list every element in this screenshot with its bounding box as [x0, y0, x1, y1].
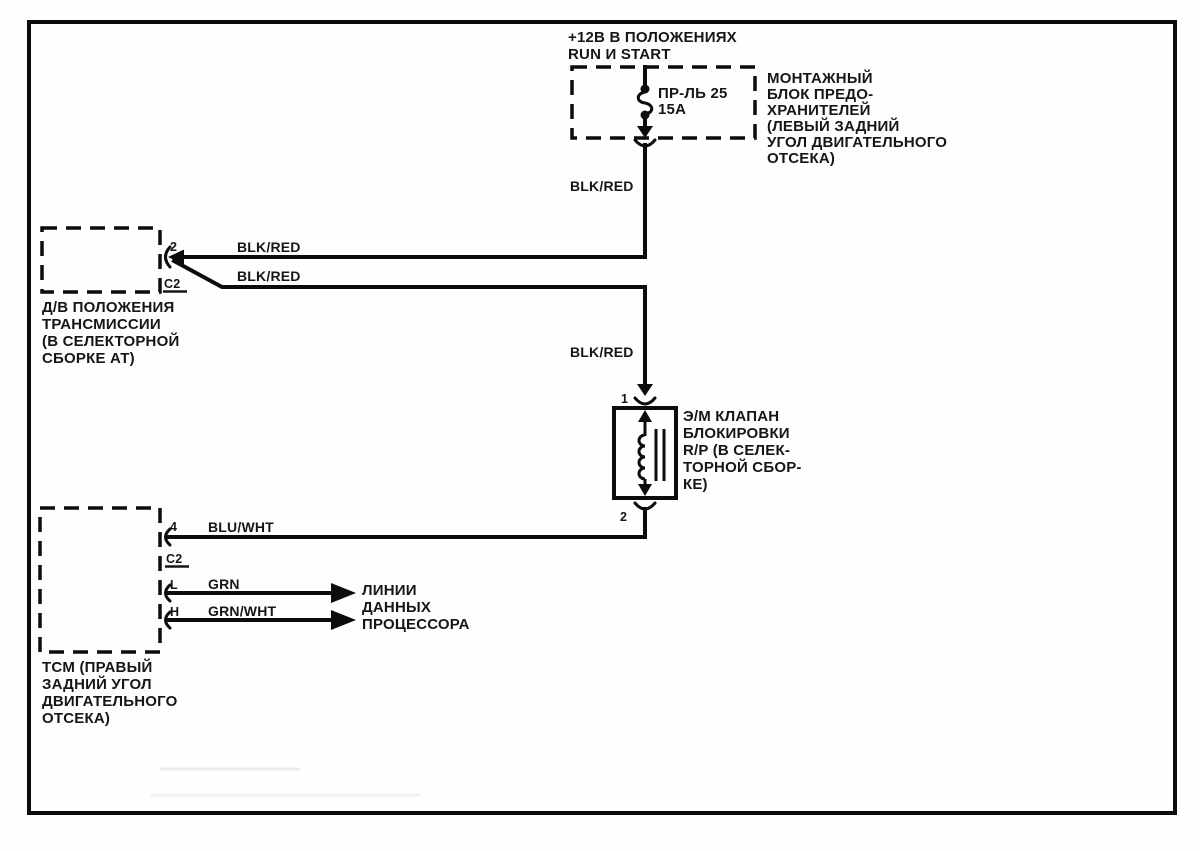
wire-label-solenoid-return: BLU/WHT — [208, 519, 274, 535]
data-line-h-arrow — [331, 610, 356, 630]
wire-label-grn-wht: GRN/WHT — [208, 603, 277, 619]
solenoid-pin1-arrow — [637, 384, 653, 396]
wiring-diagram-page: +12В В ПОЛОЖЕНИЯХ RUN И START ПР-ЛЬ 25 1… — [0, 0, 1200, 851]
power-source-label-line1: +12В В ПОЛОЖЕНИЯХ — [568, 29, 737, 46]
page-border — [29, 22, 1175, 813]
trans-switch-box — [42, 228, 160, 292]
tcm-description: TCM (ПРАВЫЙ ЗАДНИЙ УГОЛ ДВИГАТЕЛЬНОГО ОТ… — [42, 658, 178, 727]
fuse-block-desc-line6: ОТСЕКА) — [767, 150, 835, 167]
wiring-diagram-canvas: +12В В ПОЛОЖЕНИЯХ RUN И START ПР-ЛЬ 25 1… — [0, 0, 1200, 851]
solenoid-description: Э/М КЛАПАН БЛОКИРОВКИ R/P (В СЕЛЕК- ТОРН… — [683, 408, 802, 493]
trans-switch-pin2-label: 2 — [170, 240, 177, 254]
solenoid-desc-line3: R/P (В СЕЛЕК- — [683, 442, 790, 459]
wire-label-switch-output: BLK/RED — [237, 268, 301, 284]
solenoid-desc-line1: Э/М КЛАПАН — [683, 408, 779, 425]
fuse-output-arrow — [637, 126, 653, 138]
data-lines-description: ЛИНИИ ДАННЫХ ПРОЦЕССОРА — [362, 582, 470, 633]
trans-switch-desc-line4: СБОРКЕ АТ) — [42, 350, 135, 367]
solenoid-pin1-label: 1 — [621, 392, 628, 406]
tcm-desc-line3: ДВИГАТЕЛЬНОГО — [42, 693, 178, 710]
fuse-symbol — [635, 67, 655, 146]
solenoid-desc-line4: ТОРНОЙ СБОР- — [683, 458, 802, 476]
tcm-desc-line4: ОТСЕКА) — [42, 710, 110, 727]
fuse-block-description: МОНТАЖНЫЙ БЛОК ПРЕДО- ХРАНИТЕЛЕЙ (ЛЕВЫЙ … — [767, 69, 947, 167]
fuse-block-desc-line2: БЛОК ПРЕДО- — [767, 86, 873, 103]
trans-switch-desc-line1: Д/В ПОЛОЖЕНИЯ — [42, 299, 174, 316]
fuse-block-desc-line5: УГОЛ ДВИГАТЕЛЬНОГО — [767, 134, 947, 151]
data-lines-desc-line1: ЛИНИИ — [362, 582, 417, 599]
wire-label-fuse-output: BLK/RED — [570, 178, 634, 194]
data-lines-desc-line3: ПРОЦЕССОРА — [362, 616, 470, 633]
solenoid-desc-line5: КЕ) — [683, 476, 708, 493]
fuse-block-desc-line1: МОНТАЖНЫЙ — [767, 69, 873, 87]
trans-switch-description: Д/В ПОЛОЖЕНИЯ ТРАНСМИССИИ (В СЕЛЕКТОРНОЙ… — [42, 299, 179, 367]
tcm-box — [40, 508, 160, 652]
solenoid-pin1-bracket — [635, 398, 655, 404]
data-line-l-arrow — [331, 583, 356, 603]
solenoid-coil-winding — [639, 435, 645, 479]
fuse-block-desc-line4: (ЛЕВЫЙ ЗАДНИЙ — [767, 117, 899, 135]
wire-label-switch-feed: BLK/RED — [237, 239, 301, 255]
tcm-pin4-label: 4 — [170, 520, 177, 534]
fuse-rating-label: 15А — [658, 101, 686, 118]
solenoid-pin2-label: 2 — [620, 510, 627, 524]
trans-switch-desc-line3: (В СЕЛЕКТОРНОЙ — [42, 332, 179, 350]
tcm-desc-line2: ЗАДНИЙ УГОЛ — [42, 675, 152, 693]
tcm-desc-line1: TCM (ПРАВЫЙ — [42, 658, 152, 676]
trans-switch-connector-label: C2 — [164, 277, 180, 291]
trans-switch-desc-line2: ТРАНСМИССИИ — [42, 316, 161, 333]
wire-label-solenoid-feed: BLK/RED — [570, 344, 634, 360]
solenoid-desc-line2: БЛОКИРОВКИ — [683, 425, 790, 442]
data-lines-desc-line2: ДАННЫХ — [362, 599, 431, 616]
wire-label-grn: GRN — [208, 576, 240, 592]
solenoid-inner-arrow-down — [638, 484, 652, 496]
fuse-block-desc-line3: ХРАНИТЕЛЕЙ — [767, 101, 871, 119]
tcm-pinH-label: H — [170, 605, 179, 619]
power-source-label-line2: RUN И START — [568, 46, 671, 63]
tcm-pinL-label: L — [170, 578, 178, 592]
tcm-connector-label: C2 — [166, 552, 182, 566]
solenoid-coil-symbol — [638, 410, 664, 496]
fuse-name-label: ПР-ЛЬ 25 — [658, 85, 728, 102]
